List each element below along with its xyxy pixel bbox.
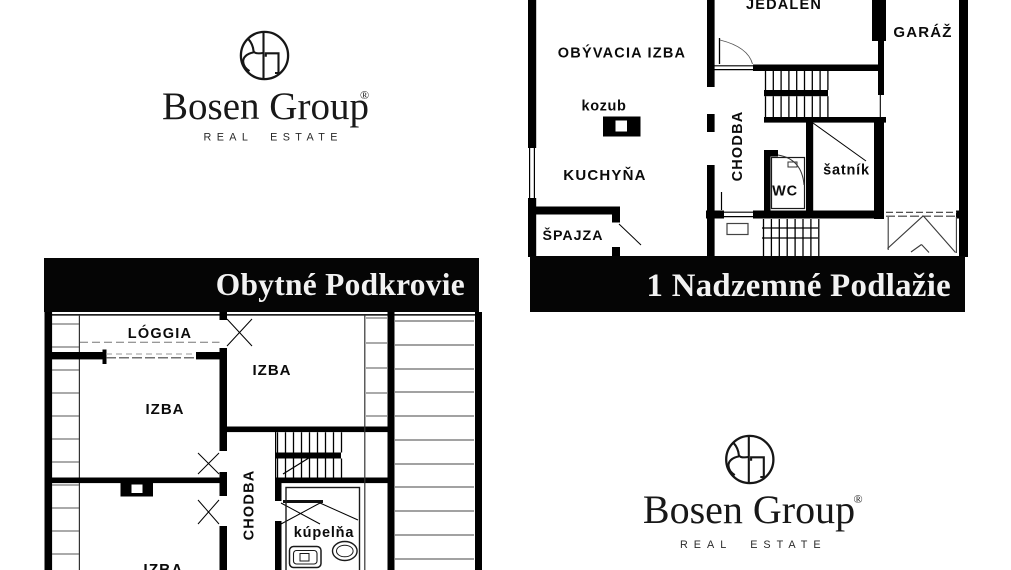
svg-text:IZBA: IZBA [253,362,292,379]
svg-text:LÓGGIA: LÓGGIA [128,324,192,342]
svg-text:Obytné Podkrovie: Obytné Podkrovie [216,267,465,302]
svg-text:OBÝVACIA IZBA: OBÝVACIA IZBA [558,44,686,62]
svg-text:CHODBA: CHODBA [730,111,746,182]
svg-text:ŠPAJZA: ŠPAJZA [543,226,604,244]
svg-text:CHODBA: CHODBA [242,470,258,541]
svg-text:šatník: šatník [823,163,870,179]
svg-text:Bosen Group: Bosen Group [162,85,369,128]
svg-text:Bosen Group: Bosen Group [643,487,855,532]
svg-text:IZBA: IZBA [146,401,185,418]
svg-text:1 Nadzemné Podlažie: 1 Nadzemné Podlažie [647,268,951,304]
svg-text:®: ® [360,88,369,102]
svg-text:kozub: kozub [582,99,627,115]
svg-text:JEDÁLEŇ: JEDÁLEŇ [746,0,822,13]
svg-text:GARÁŽ: GARÁŽ [893,23,952,41]
svg-text:REAL ESTATE: REAL ESTATE [680,539,827,551]
svg-text:kúpelňa: kúpelňa [294,525,355,541]
svg-text:REAL ESTATE: REAL ESTATE [204,132,343,144]
svg-text:IZBA: IZBA [143,562,183,570]
svg-text:®: ® [853,492,862,506]
svg-text:WC: WC [772,184,798,200]
svg-text:KUCHYŇA: KUCHYŇA [563,166,646,184]
